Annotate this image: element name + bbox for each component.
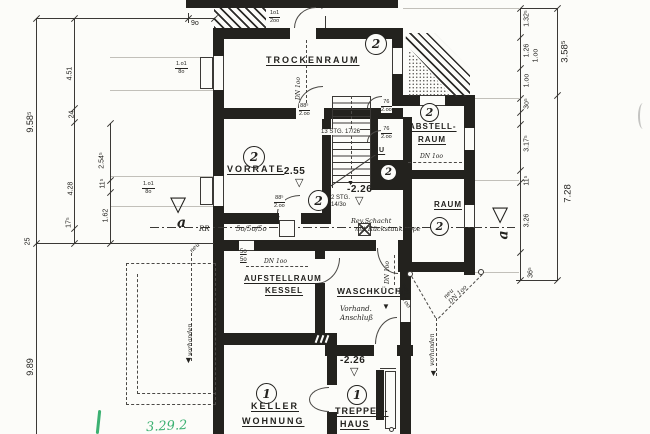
floor-plan-scan: TROCKENRAUM 2 VORRATE 2 ABSTELL- RAUM 2 … (0, 0, 650, 434)
note-pumpensumpf: Pumpensumpf (228, 216, 279, 224)
dim-left-outer-bottom: 9.89 (25, 349, 35, 385)
dim-left-outer-top: 9.58⁵ (25, 104, 35, 140)
window-size-height: 8o (175, 69, 188, 76)
level-triangle-icon: ▽ (295, 178, 303, 189)
wall-segment (213, 28, 290, 39)
dim-top-90: 9o (191, 20, 199, 27)
pipe-label-dn100-wasch: DN 1oo (385, 261, 392, 284)
dim-left-162: 1.62 (103, 198, 110, 234)
wall-segment (213, 90, 224, 176)
construction-line (110, 90, 213, 91)
dim-right-outer-bottom: 7.28 (563, 176, 574, 212)
note-vorhand-anschluss-1: Vorhand. (340, 305, 372, 313)
section-letter-left: a (177, 215, 186, 231)
existing-building-outline-inner (137, 274, 216, 394)
window-size-width: 1.o1 (142, 181, 155, 189)
room-label-aufstellraum-1: AUFSTELLRAUM (244, 274, 322, 283)
door-swing-arc (309, 387, 329, 412)
window-size-height: 8o (142, 189, 155, 196)
line (332, 96, 333, 188)
line (36, 18, 37, 434)
room-label-keller-2: WOHNUNG (242, 416, 305, 426)
stair-note-2stg-1: 2 STG. (331, 195, 350, 201)
stair-hatch-top (214, 8, 266, 28)
room-label-trockenraum: TROCKENRAUM (266, 55, 360, 65)
line (36, 243, 214, 244)
room-label-aufstellraum-2: KESSEL (265, 286, 303, 295)
dim-right-115: 11⁵ (524, 163, 531, 199)
wall-segment (213, 39, 224, 56)
stair-direction-arrow-icon: ▼ (347, 180, 354, 187)
pipe-label-rr: RR (199, 225, 210, 233)
level-mark-255: -2.55 (280, 166, 305, 177)
dim-50a: 5o (240, 249, 247, 255)
note-pumpensumpf-size: 5o/5o/5o (236, 225, 267, 233)
door-size-vorrat: 88⁵ 2.oo (274, 195, 285, 209)
construction-line (110, 206, 213, 207)
pump-sump-box (279, 220, 295, 237)
level-triangle-icon: ▽ (355, 196, 363, 207)
pipe-label-dn100-trocken: DN 1oo (296, 77, 303, 100)
room-label-raum: RAUM (434, 200, 462, 209)
dim-50b: 5o (240, 257, 247, 263)
wall-segment (254, 240, 376, 251)
room-number-trockenraum: 2 (365, 33, 387, 55)
stair-note-2stg-2: 14/3o (331, 202, 346, 208)
wall-segment (403, 262, 475, 272)
dim-right-365: 36⁵ (528, 255, 535, 291)
dashed-pipe-line (408, 162, 462, 163)
vent-symbol-icon: ▽ (315, 0, 329, 10)
door-size-top: 1o1 2oo (269, 10, 280, 24)
pipe-label-neu-dn100-2: neu DN 1oo (443, 280, 469, 306)
door-swing-arc (375, 317, 397, 344)
door-size-height: 2.oo (299, 111, 310, 118)
room-number-abstellraum: 2 (420, 103, 439, 122)
window-size-1: 1.o1 8o (175, 61, 188, 75)
door-swing-arc (294, 7, 316, 28)
note-vorhand-anschluss-2: Anschluß (340, 314, 373, 322)
level-triangle-icon: ▽ (350, 367, 358, 378)
construction-line (403, 8, 519, 9)
vorhanden-arrow-icon: ▼ (429, 369, 438, 378)
dim-right-1325: 1.32⁵ (524, 1, 531, 37)
door-size-width: 88⁵ (299, 103, 310, 111)
construction-line (475, 98, 519, 99)
wall-segment (464, 95, 475, 275)
door-size-height: 2.oo (274, 203, 285, 210)
wall-segment (301, 213, 331, 224)
door-size-top-height: 2oo (269, 18, 280, 25)
room-label-abstellraum-1: ABSTELL- (409, 122, 457, 131)
room-label-treppenhaus-2: HAUS (340, 419, 370, 429)
wall-segment (316, 28, 403, 39)
room-number-flur: 2 (308, 190, 329, 211)
wall-segment (403, 170, 464, 179)
door-size-du-2: 76 2.oo (381, 126, 392, 140)
window-size-2: 1.o1 8o (142, 181, 155, 195)
dim-left-25: 25 (25, 224, 32, 260)
dashed-pipe-diagonal (411, 276, 436, 318)
door-size-trockenraum: 88⁵ 2.oo (299, 103, 310, 117)
construction-line (475, 180, 519, 181)
wall-segment (213, 240, 239, 251)
wall-segment (186, 0, 398, 8)
dim-left-115: 11⁵ (100, 166, 107, 202)
room-number-raum: 2 (430, 217, 449, 236)
room-label-treppenhaus-1: TREPPEN- (335, 406, 389, 416)
dim-right-326: 3.26 (524, 203, 531, 239)
scan-artifact (638, 103, 648, 129)
room-number-du: 2 (380, 164, 397, 181)
window-opening (392, 48, 403, 74)
stair-flight-outline (385, 371, 396, 429)
anschluss-arrow-icon: ▼ (382, 303, 390, 311)
dim-right-3175: 3.17⁵ (524, 126, 531, 162)
wall-segment (224, 108, 296, 119)
pipe-label-vorhanden-se: vorhanden (430, 334, 437, 366)
dim-right-outer-top: 3.58⁵ (560, 34, 571, 70)
room-label-du: DU (373, 147, 385, 154)
pipe-label-neu-dn100-1: neu DN 1oo (393, 283, 417, 310)
room-label-abstellraum-2: RAUM (418, 135, 446, 144)
handwritten-stroke (96, 410, 101, 434)
level-mark-226-treppe: -2.26 (340, 355, 365, 366)
window-sill (200, 57, 213, 89)
stair-note-13stg: 13 STG. 17/26 (321, 129, 360, 135)
door-size-width: 76 (381, 126, 392, 134)
dim-left-24: 24 (69, 97, 76, 133)
line (325, 16, 326, 28)
window-opening (464, 205, 475, 227)
door-size-height: 2.oo (381, 107, 392, 114)
dim-left-428: 4.28 (68, 171, 75, 207)
line (380, 368, 396, 369)
construction-line (110, 57, 213, 58)
dim-left-451: 4.51 (67, 56, 74, 92)
note-revschacht-1: Rev.Schacht (351, 217, 391, 225)
window-size-width: 1.o1 (175, 61, 188, 69)
room-number-treppenhaus: 1 (347, 385, 367, 405)
dim-right-305: 3o⁵ (524, 86, 531, 122)
pipe-label-dn100-aufstell: DN 1oo (264, 259, 287, 266)
window-opening (213, 176, 224, 206)
dimension-tick (554, 277, 561, 284)
vorhanden-arrow-icon: ▼ (184, 356, 193, 365)
line (557, 8, 558, 280)
door-size-height: 2.oo (381, 134, 392, 141)
pipe-junction (407, 271, 413, 277)
section-triangle-icon: ▽ (492, 204, 508, 225)
dim-left-175: 17⁵ (66, 205, 73, 241)
pipe-label-dn100-abstell: DN 1oo (420, 154, 443, 161)
door-size-du-1: 76 2.oo (381, 99, 392, 113)
line (110, 123, 111, 243)
handwritten-mark: 3.29.2 (146, 418, 188, 434)
line (520, 8, 521, 280)
section-triangle-icon: ▽ (170, 194, 186, 215)
wall-segment (327, 345, 337, 385)
room-label-keller-1: KELLER (251, 401, 299, 411)
room-label-vorrate: VORRATE (227, 164, 284, 174)
window-opening (464, 128, 475, 150)
line (370, 96, 371, 188)
pipe-junction (478, 269, 484, 275)
construction-line (110, 176, 213, 177)
door-size-width: 76 (381, 99, 392, 107)
line (516, 280, 558, 281)
railing-end (389, 427, 394, 432)
dashed-pipe-line (246, 266, 308, 267)
door-size-top-width: 1o1 (269, 10, 280, 18)
pipe-label-vorhanden-left: vorhanden (188, 324, 195, 356)
window-opening (213, 56, 224, 90)
door-size-width: 88⁵ (274, 195, 285, 203)
section-letter-right: a (496, 230, 512, 239)
window-sill (200, 177, 213, 205)
wall-segment (315, 283, 325, 337)
dashed-pipe-line (351, 96, 352, 184)
dim-right-100a: 1.oo (533, 38, 540, 74)
note-revschacht-2: mit Rückstauklappe (355, 225, 421, 233)
